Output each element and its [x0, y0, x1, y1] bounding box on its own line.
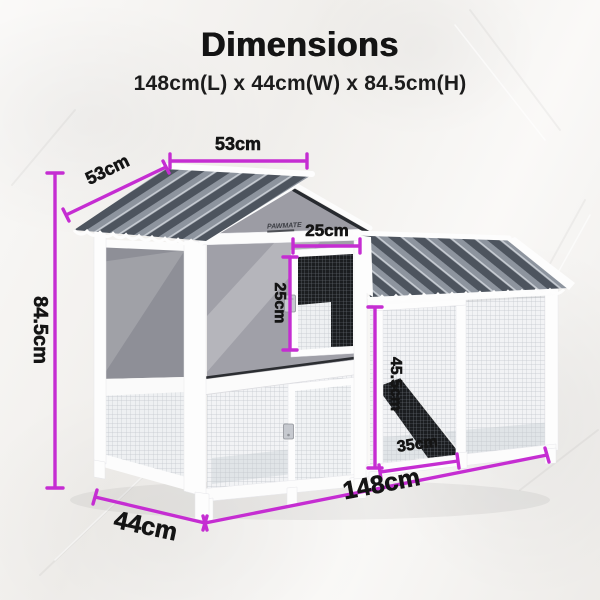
run-right-post — [545, 285, 558, 452]
dim-hatch-height-label: 25cm — [271, 283, 288, 324]
dim-roof-depth-label: 53cm — [82, 151, 132, 189]
lower-door-latch — [284, 424, 294, 439]
dim-total-height-label: 84.5cm — [29, 296, 51, 364]
dim-roof-width-label: 53cm — [215, 134, 261, 154]
rear-left-post — [94, 231, 106, 464]
upper-hatch-door — [285, 246, 362, 357]
dim-hatch-width-label: 25cm — [305, 221, 348, 240]
dim-run-height-label: 45.5cm — [387, 357, 404, 411]
dimensions-subtitle: 148cm(L) x 44cm(W) x 84.5cm(H) — [0, 72, 600, 96]
page-title: Dimensions — [0, 28, 600, 62]
rear-left-foot — [94, 460, 105, 479]
hutch-illustration: PAWMATE — [74, 166, 575, 521]
header: Dimensions 148cm(L) x 44cm(W) x 84.5cm(H… — [0, 0, 600, 96]
front-left-post — [184, 240, 206, 497]
run-roof-panel — [357, 235, 569, 297]
